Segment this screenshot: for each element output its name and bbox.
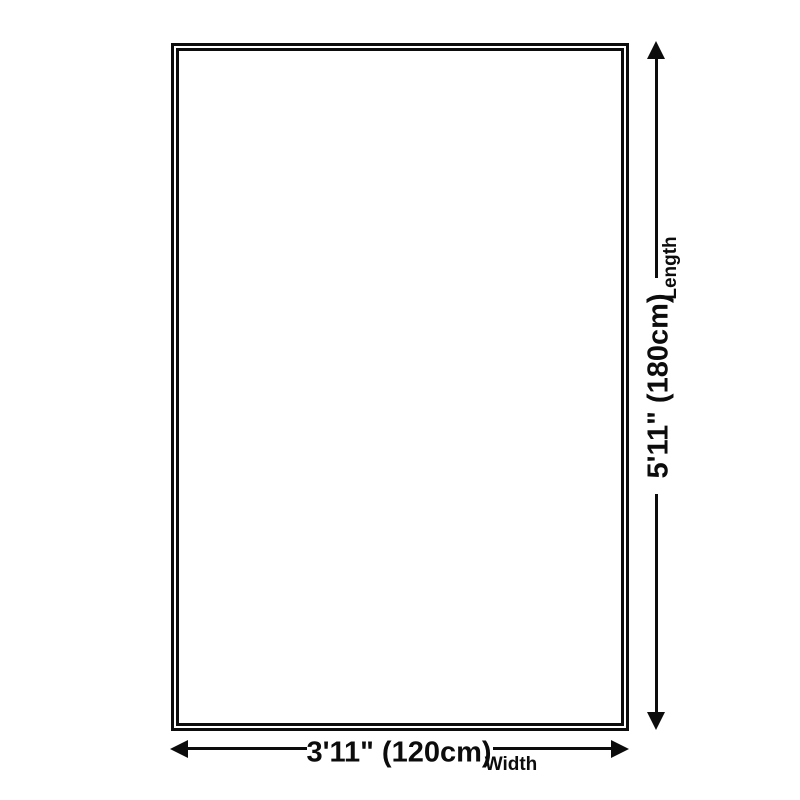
width-arrow-line-left [188, 747, 307, 750]
arrow-down-icon [647, 712, 665, 730]
length-label: Length [660, 236, 682, 299]
length-arrow-line-bottom [655, 494, 658, 716]
width-value: 3'11" (120cm) [306, 737, 491, 770]
length-value: 5'11" (180cm) [643, 293, 676, 478]
rug-outline [171, 43, 629, 731]
rug-outline-inner [176, 48, 624, 726]
width-arrow-line-right [493, 747, 612, 750]
length-arrow-line-top [655, 57, 658, 278]
arrow-left-icon [170, 740, 188, 758]
arrow-right-icon [611, 740, 629, 758]
width-label: Width [485, 754, 538, 776]
rug-size-diagram: Length 5'11" (180cm) 3'11" (120cm) Width [0, 0, 800, 800]
